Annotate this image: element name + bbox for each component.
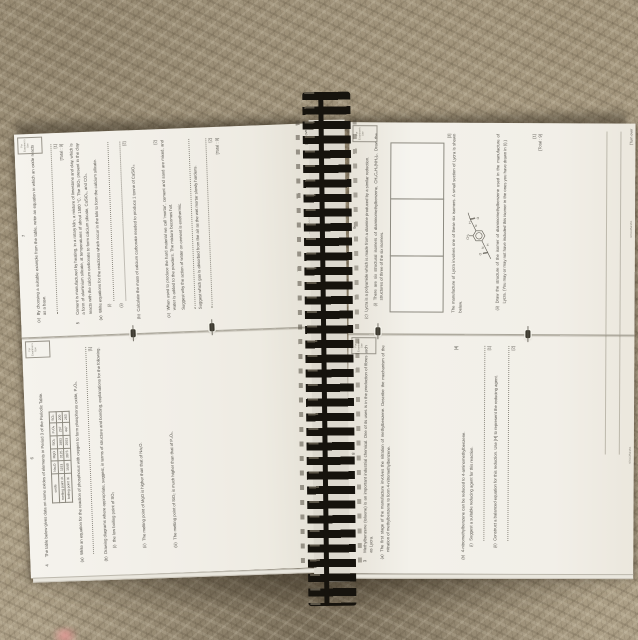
isomer-drawing-boxes [390, 143, 445, 313]
question-intro: Methylbenzene (toluene) is an important … [362, 345, 376, 553]
part-label: (a) [79, 557, 101, 566]
table-cell: 2503 [64, 435, 71, 448]
subpart-label: (i) [372, 303, 387, 312]
table-cell: 263 [63, 411, 70, 422]
period3-oxides-data-table: oxide Na₂O MgO SiO₂ P₄O₆ SO₂ melting poi… [49, 411, 73, 503]
question-text: Draw the structure of the isomer of diam… [495, 134, 508, 304]
table-row-label: boiling point /K [65, 474, 73, 503]
subpart-label: (ii) [495, 306, 510, 315]
subpart-label: (ii) [118, 303, 127, 312]
examiner-use-box: For Examiner's Use [25, 340, 51, 358]
drawing-box [391, 142, 445, 200]
page-left-bottom: 6 For Examiner's Use 4 The table below g… [22, 327, 327, 578]
subpart-label: (iii) [173, 542, 182, 551]
subpart-label: (i) [111, 544, 140, 554]
atom-label: O [476, 216, 480, 219]
question-intro: The table below gives data on some oxide… [36, 349, 50, 558]
staple-mark [209, 323, 214, 331]
subpart-label: (ii) [493, 543, 514, 552]
part-label: (c) [36, 317, 64, 326]
question-text: 4-nitromethylbenzene can be reduced to 4… [460, 346, 467, 553]
subpart-label: (i) [469, 543, 490, 552]
examiner-use-box: For Examiner's Use [17, 137, 43, 155]
photo-of-exam-booklet: 7 For Examiner's Use (c) By choosing a s… [0, 0, 638, 640]
mechanism-drawing-space [394, 345, 453, 552]
answer-line [477, 346, 485, 541]
page-left-top: 7 For Examiner's Use (c) By choosing a s… [14, 123, 318, 338]
question-text: Lycra is a polyamide which is made from … [364, 133, 371, 312]
question-text: The manufacture of Lycra involves one of… [451, 134, 465, 313]
molecule-drawing: N H O N H O CH₃ [466, 205, 493, 267]
atom-label: N [481, 246, 485, 249]
table-cell: 1548 [64, 460, 71, 474]
page-number: 7 [17, 134, 30, 337]
drawing-box [390, 256, 444, 314]
atom-label: N [474, 224, 478, 227]
page-right-bottom: 8 For Examiner's Use 3 Methylbenzene (to… [347, 334, 634, 574]
atom-label: O [478, 252, 482, 255]
total-marks: [Total : 9] [537, 134, 543, 323]
question-number: 4 [44, 559, 53, 566]
working-space [510, 134, 531, 323]
question-number: 3 [362, 555, 377, 562]
question-text: Suggest a suitable reducing agent for th… [469, 346, 476, 541]
part-label: (b) [460, 555, 514, 563]
right-sheet: 9 For Examiner's Use (c) Lycra is a poly… [347, 122, 635, 574]
paper-reference-code: 9701/2/M/J/04 [628, 336, 632, 575]
question-text: Construct a balanced equation for this r… [493, 346, 500, 541]
question-intro: Cement is manufactured by heating, in a … [68, 143, 93, 315]
subpart-label: (i) [107, 303, 116, 312]
comb-binding [302, 92, 356, 607]
question-text: There are six structural isomers of diam… [372, 133, 385, 300]
page-right-top: 9 For Examiner's Use (c) Lycra is a poly… [348, 122, 635, 335]
open-comb-bound-booklet: 7 For Examiner's Use (c) By choosing a s… [0, 0, 638, 640]
atom-label: H [468, 221, 472, 224]
mark-allocation: [1] [485, 346, 491, 541]
question-number: 5 [75, 317, 96, 325]
left-sheet: 7 For Examiner's Use (c) By choosing a s… [14, 123, 327, 578]
atom-label: CH₃ [466, 233, 470, 240]
answer-line [501, 346, 509, 541]
underlying-page-edge [349, 574, 633, 579]
part-label: (b) [136, 313, 164, 322]
part-label: (c) [363, 314, 386, 322]
part-label: (a) [98, 314, 133, 323]
table-cell: 447 [63, 423, 70, 436]
part-label: (a) [379, 554, 457, 562]
mark-allocation: [4] [452, 346, 458, 553]
mark-allocation: [2] [509, 346, 515, 541]
paper-reference-code: 9701/2/M/J/04 [629, 124, 633, 335]
lycra-section-structure: N H O N H O CH₃ [466, 205, 493, 267]
question-text: The first stage of the manufacture invol… [379, 345, 393, 552]
mark-allocation: [1] [530, 134, 536, 323]
subpart-label: (ii) [142, 542, 171, 552]
table-cell: 3873 [64, 448, 71, 461]
atom-label: H [486, 243, 490, 246]
turn-over-label: [Turn over [629, 129, 633, 145]
drawing-box [390, 199, 444, 257]
part-label: (b) [103, 554, 182, 565]
